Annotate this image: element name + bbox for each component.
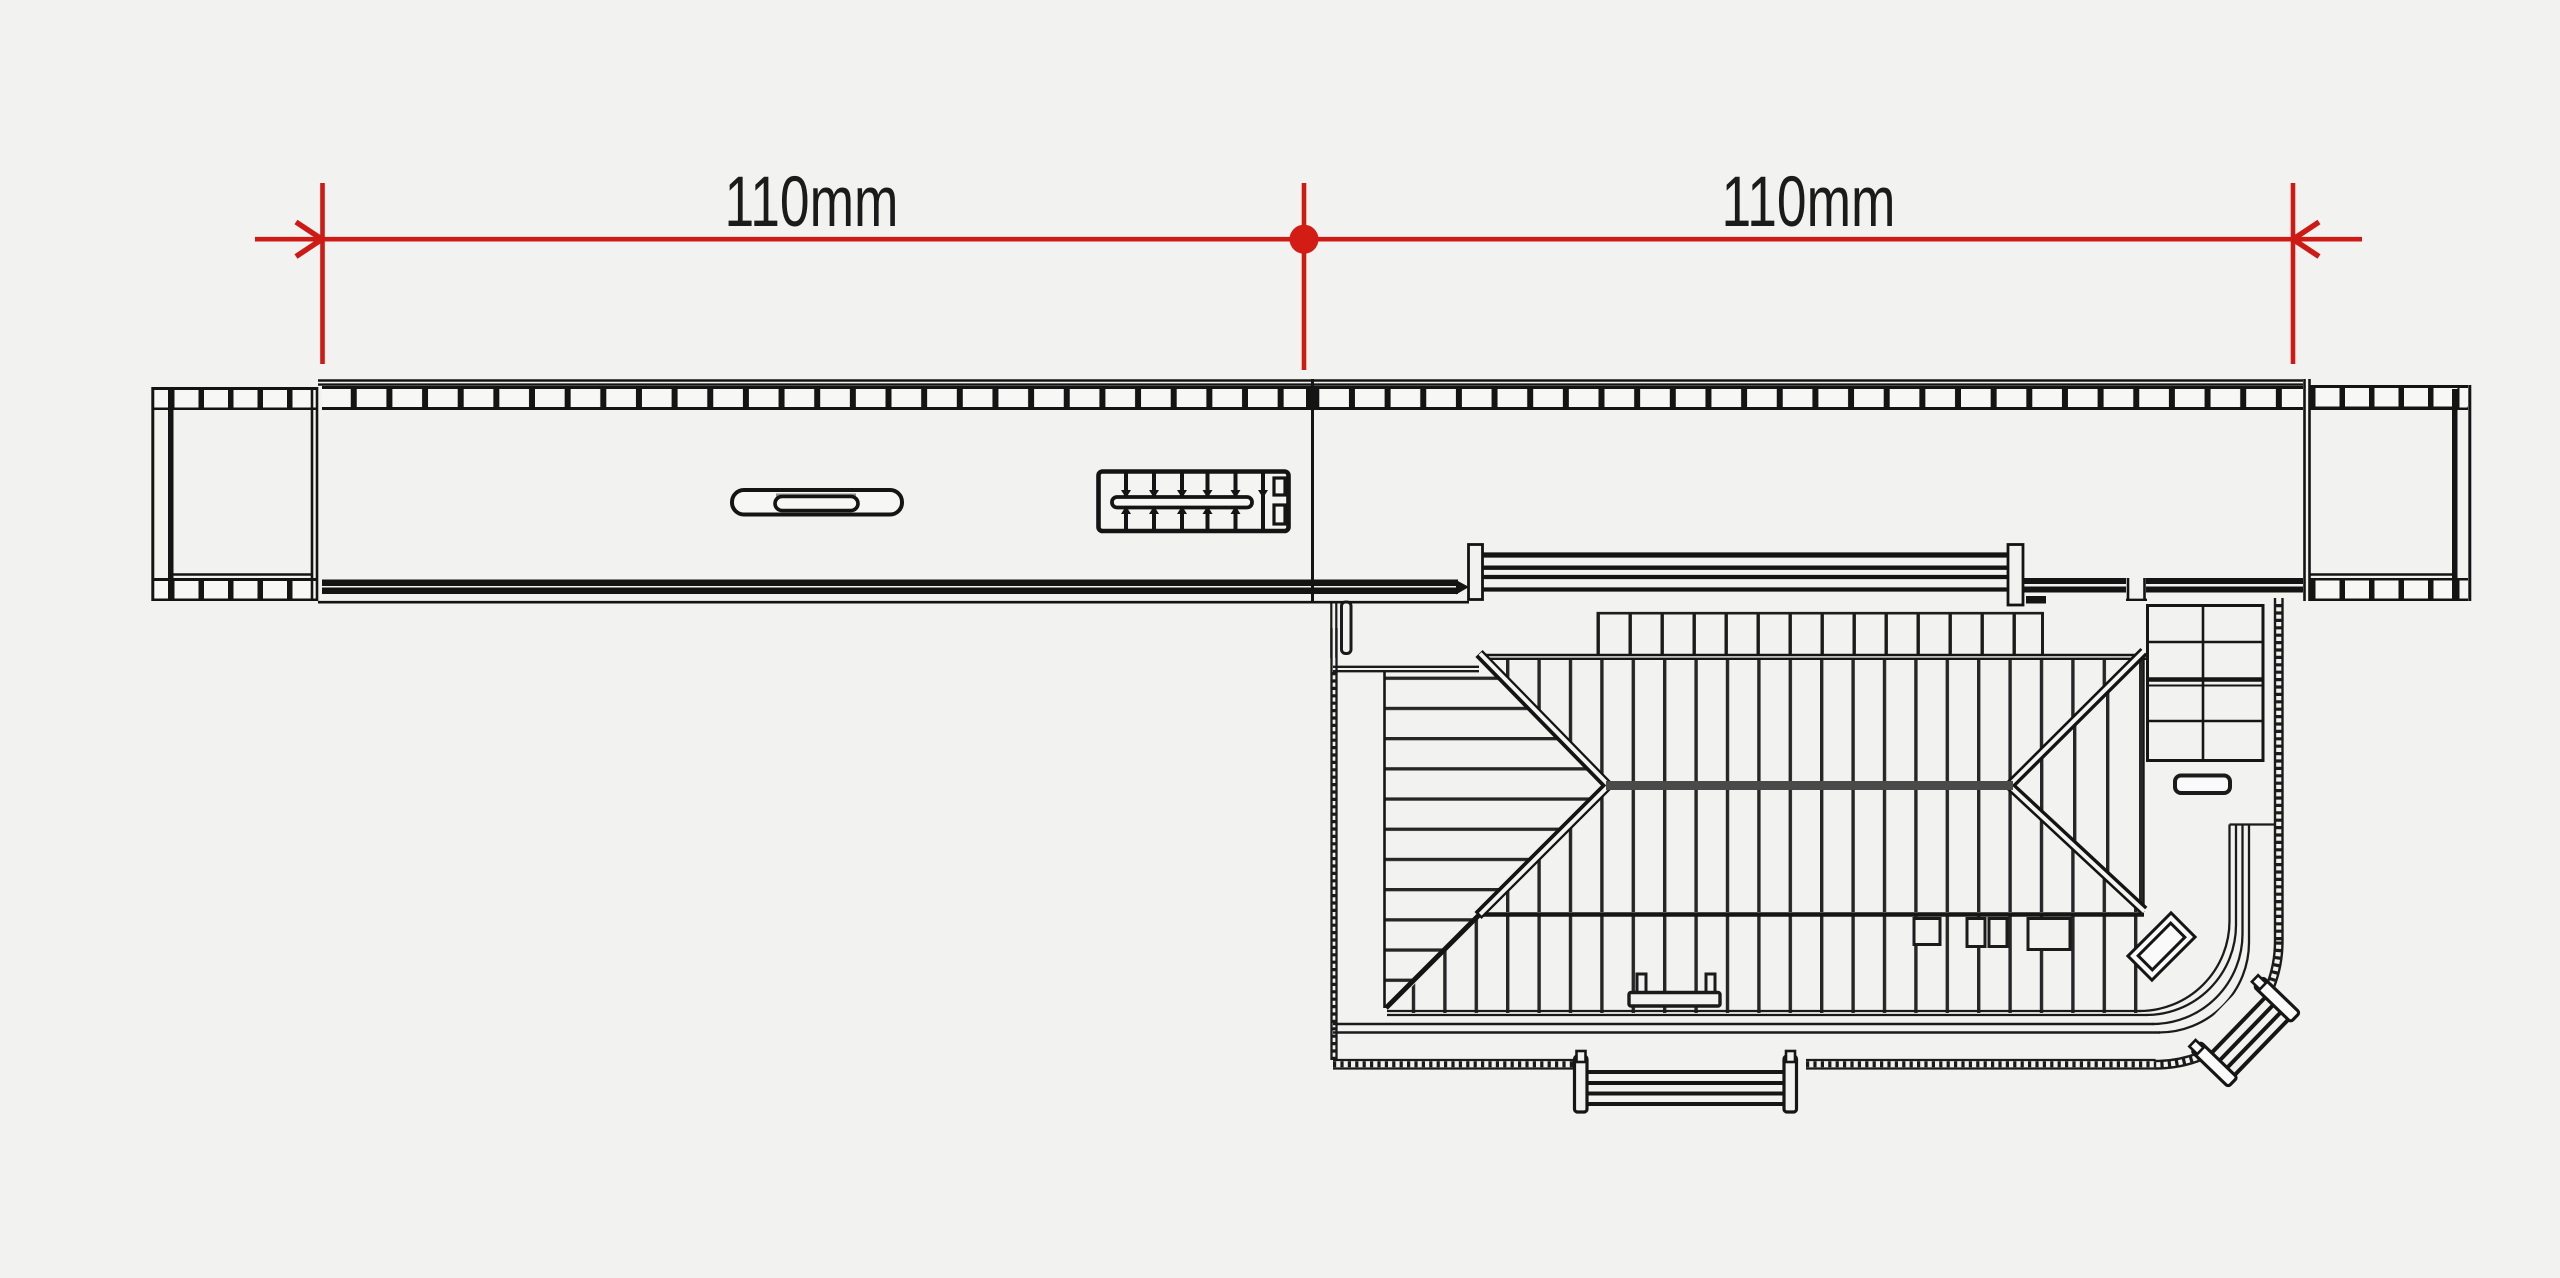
- svg-text:110mm: 110mm: [1722, 163, 1896, 242]
- svg-text:110mm: 110mm: [725, 163, 899, 242]
